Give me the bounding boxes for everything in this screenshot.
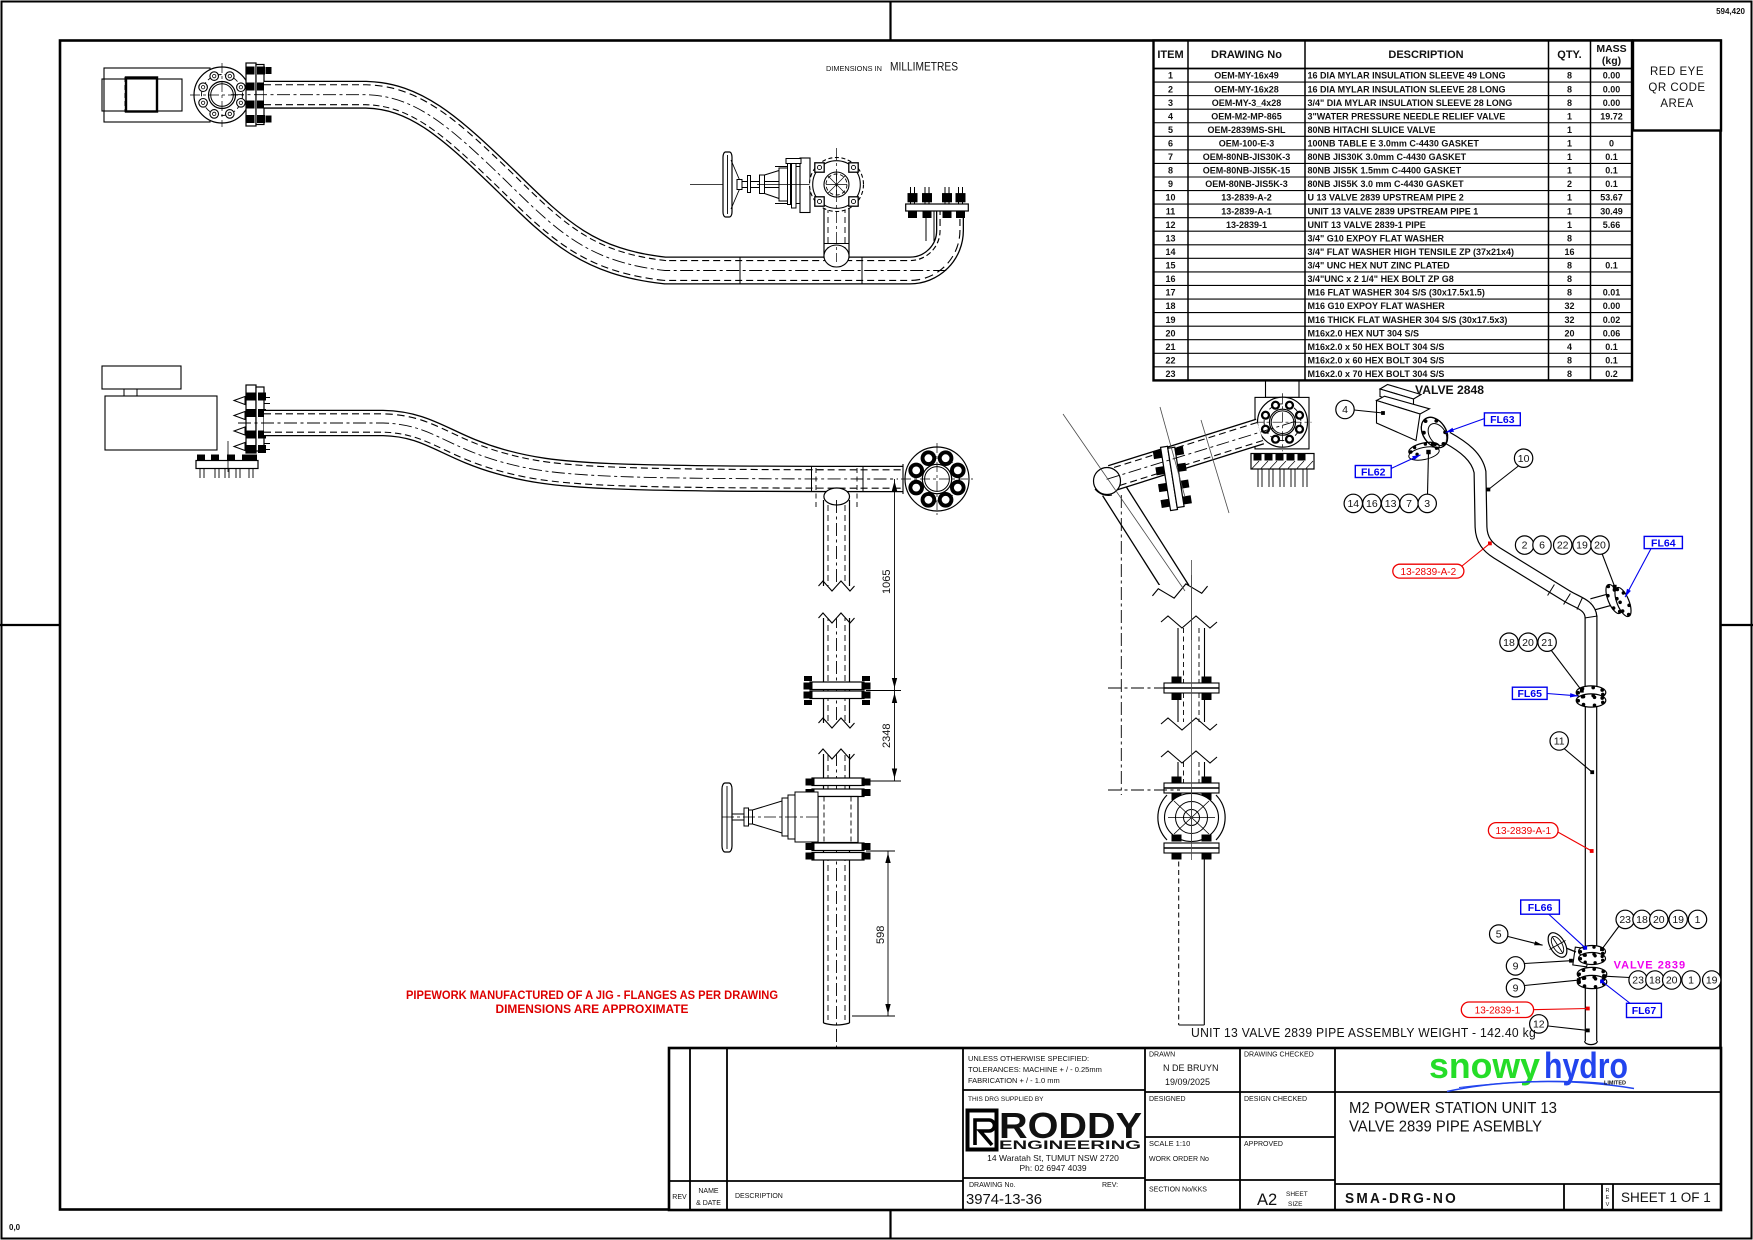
svg-text:RED EYE: RED EYE <box>1650 66 1704 78</box>
svg-text:13-2839-A-1: 13-2839-A-1 <box>1495 826 1551 837</box>
svg-text:SMA-DRG-NO: SMA-DRG-NO <box>1345 1190 1458 1207</box>
svg-text:DESIGNED: DESIGNED <box>1149 1096 1186 1103</box>
svg-text:DRAWING CHECKED: DRAWING CHECKED <box>1244 1052 1314 1059</box>
svg-text:MASS: MASS <box>1596 43 1626 55</box>
svg-text:3: 3 <box>1168 98 1173 108</box>
svg-text:2348: 2348 <box>881 724 893 748</box>
svg-text:0.01: 0.01 <box>1603 288 1621 298</box>
svg-text:3/4" UNC HEX NUT ZINC PLATED: 3/4" UNC HEX NUT ZINC PLATED <box>1308 261 1451 271</box>
svg-text:32: 32 <box>1564 315 1574 325</box>
svg-text:1: 1 <box>1567 193 1572 203</box>
svg-text:13-2839-A-2: 13-2839-A-2 <box>1221 193 1272 203</box>
svg-text:ENGINEERING: ENGINEERING <box>999 1138 1141 1152</box>
svg-text:21: 21 <box>1165 342 1175 352</box>
svg-text:FL67: FL67 <box>1632 1005 1657 1017</box>
svg-text:9: 9 <box>1168 179 1173 189</box>
svg-text:7: 7 <box>1168 152 1173 162</box>
svg-text:0.1: 0.1 <box>1605 179 1618 189</box>
svg-text:8: 8 <box>1567 84 1572 94</box>
svg-text:1: 1 <box>1567 111 1572 121</box>
svg-text:DESCRIPTION: DESCRIPTION <box>1388 49 1463 61</box>
svg-text:0.06: 0.06 <box>1603 328 1621 338</box>
svg-text:14: 14 <box>1347 498 1359 510</box>
svg-text:6: 6 <box>1539 540 1545 552</box>
svg-text:16 DIA MYLAR INSULATION SLEEVE: 16 DIA MYLAR INSULATION SLEEVE 28 LONG <box>1308 84 1506 94</box>
svg-text:19: 19 <box>1706 975 1718 987</box>
svg-text:19: 19 <box>1672 914 1684 926</box>
svg-text:DIMENSIONS IN: DIMENSIONS IN <box>826 66 882 73</box>
svg-text:5: 5 <box>1496 929 1502 941</box>
svg-text:1: 1 <box>1695 914 1701 926</box>
svg-text:LIMITED: LIMITED <box>1604 1081 1626 1087</box>
svg-text:8: 8 <box>1567 71 1572 81</box>
svg-text:8: 8 <box>1567 356 1572 366</box>
svg-text:22: 22 <box>1557 540 1569 552</box>
svg-text:MILLIMETRES: MILLIMETRES <box>890 62 958 74</box>
svg-text:4: 4 <box>1567 342 1572 352</box>
svg-text:VALVE 2848: VALVE 2848 <box>1415 383 1484 397</box>
svg-text:DIMENSIONS ARE APPROXIMATE: DIMENSIONS ARE APPROXIMATE <box>496 1004 689 1016</box>
svg-text:REV:: REV: <box>1102 1182 1118 1189</box>
svg-text:OEM-80NB-JIS5K-15: OEM-80NB-JIS5K-15 <box>1203 166 1291 176</box>
svg-text:3/4" G10 EXPOY FLAT WASHER: 3/4" G10 EXPOY FLAT WASHER <box>1308 233 1445 243</box>
svg-text:8: 8 <box>1567 369 1572 379</box>
svg-text:M2 POWER STATION UNIT 13: M2 POWER STATION UNIT 13 <box>1349 1100 1557 1117</box>
svg-text:OEM-MY-16x49: OEM-MY-16x49 <box>1214 71 1279 81</box>
svg-text:WORK ORDER No: WORK ORDER No <box>1149 1156 1209 1163</box>
svg-text:0: 0 <box>1609 139 1614 149</box>
svg-text:U 13 VALVE 2839 UPSTREAM PIPE: U 13 VALVE 2839 UPSTREAM PIPE 2 <box>1308 193 1464 203</box>
svg-text:FL66: FL66 <box>1528 902 1553 914</box>
svg-text:23: 23 <box>1619 914 1631 926</box>
svg-text:20: 20 <box>1522 637 1534 649</box>
svg-text:80NB JIS5K 3.0 mm C-4430 GASK: 80NB JIS5K 3.0 mm C-4430 GASKET <box>1308 179 1465 189</box>
svg-text:M16x2.0 x 60 HEX BOLT 304 S/S: M16x2.0 x 60 HEX BOLT 304 S/S <box>1308 356 1445 366</box>
svg-text:13-2839-A-2: 13-2839-A-2 <box>1401 567 1457 578</box>
svg-text:8: 8 <box>1567 98 1572 108</box>
svg-text:53.67: 53.67 <box>1600 193 1623 203</box>
svg-text:80NB HITACHI SLUICE VALVE: 80NB HITACHI SLUICE VALVE <box>1308 125 1436 135</box>
svg-text:0.00: 0.00 <box>1603 71 1621 81</box>
svg-text:20: 20 <box>1564 328 1574 338</box>
svg-text:0.1: 0.1 <box>1605 166 1618 176</box>
svg-text:18: 18 <box>1503 637 1515 649</box>
svg-text:FL63: FL63 <box>1490 414 1515 426</box>
svg-text:QTY.: QTY. <box>1557 49 1581 61</box>
svg-text:1: 1 <box>1567 206 1572 216</box>
svg-text:OEM-2839MS-SHL: OEM-2839MS-SHL <box>1207 125 1286 135</box>
svg-text:18: 18 <box>1165 301 1175 311</box>
svg-text:VALVE 2839 PIPE ASEMBLY: VALVE 2839 PIPE ASEMBLY <box>1349 1119 1542 1136</box>
svg-text:8: 8 <box>1168 166 1173 176</box>
svg-text:1: 1 <box>1567 139 1572 149</box>
svg-text:22: 22 <box>1165 356 1175 366</box>
svg-text:0.02: 0.02 <box>1603 315 1621 325</box>
svg-text:snowy: snowy <box>1429 1045 1540 1086</box>
svg-text:NAME: NAME <box>698 1188 719 1195</box>
svg-text:80NB JIS30K 3.0mm C-4430 GASK: 80NB JIS30K 3.0mm C-4430 GASKET <box>1308 152 1467 162</box>
svg-text:2: 2 <box>1168 84 1173 94</box>
svg-text:M16 FLAT WASHER 304 S/S (30x1: M16 FLAT WASHER 304 S/S (30x17.5x1.5) <box>1308 288 1485 298</box>
svg-text:M16x2.0 x 50 HEX BOLT 304 S/S: M16x2.0 x 50 HEX BOLT 304 S/S <box>1308 342 1445 352</box>
svg-text:4: 4 <box>1168 111 1173 121</box>
svg-text:3: 3 <box>1424 498 1430 510</box>
svg-text:THIS DRG SUPPLIED BY: THIS DRG SUPPLIED BY <box>968 1096 1044 1103</box>
svg-text:2: 2 <box>1567 179 1572 189</box>
svg-text:1: 1 <box>1567 152 1572 162</box>
svg-text:8: 8 <box>1567 288 1572 298</box>
svg-text:15: 15 <box>1165 261 1175 271</box>
svg-text:PIPEWORK MANUFACTURED OF A JIG: PIPEWORK MANUFACTURED OF A JIG - FLANGES… <box>406 990 778 1002</box>
svg-text:M16x2.0 x 70 HEX BOLT 304 S/S: M16x2.0 x 70 HEX BOLT 304 S/S <box>1308 369 1445 379</box>
svg-text:3/4"UNC x 2 1/4" HEX BOLT ZP G: 3/4"UNC x 2 1/4" HEX BOLT ZP G8 <box>1308 274 1454 284</box>
svg-text:13-2839-1: 13-2839-1 <box>1475 1005 1521 1016</box>
svg-text:SHEET 1 OF 1: SHEET 1 OF 1 <box>1621 1190 1711 1205</box>
svg-text:18: 18 <box>1649 975 1661 987</box>
svg-text:Ph: 02 6947 4039: Ph: 02 6947 4039 <box>1019 1163 1086 1173</box>
svg-text:V: V <box>1606 1202 1610 1208</box>
svg-text:E: E <box>1606 1195 1610 1201</box>
svg-text:SIZE: SIZE <box>1288 1201 1303 1208</box>
svg-text:M16 THICK FLAT WASHER 304 S/S: M16 THICK FLAT WASHER 304 S/S (30x17.5x3… <box>1308 315 1508 325</box>
svg-text:19/09/2025: 19/09/2025 <box>1165 1077 1210 1087</box>
svg-text:598: 598 <box>875 926 887 944</box>
svg-text:UNIT 13 VALVE 2839-1 PIPE: UNIT 13 VALVE 2839-1 PIPE <box>1308 220 1426 230</box>
svg-text:0.1: 0.1 <box>1605 152 1618 162</box>
svg-text:19: 19 <box>1165 315 1175 325</box>
svg-text:9: 9 <box>1513 961 1519 973</box>
svg-text:20: 20 <box>1653 914 1665 926</box>
svg-text:& DATE: & DATE <box>696 1200 721 1207</box>
svg-text:5.66: 5.66 <box>1603 220 1621 230</box>
svg-text:0.2: 0.2 <box>1605 369 1618 379</box>
svg-text:10: 10 <box>1165 193 1175 203</box>
svg-text:QR CODE: QR CODE <box>1648 82 1705 94</box>
svg-text:9: 9 <box>1513 982 1519 994</box>
svg-text:8: 8 <box>1567 261 1572 271</box>
svg-text:0.00: 0.00 <box>1603 84 1621 94</box>
svg-text:A2: A2 <box>1257 1191 1277 1209</box>
svg-text:13: 13 <box>1385 498 1397 510</box>
svg-text:M16 G10 EXPOY FLAT WASHER: M16 G10 EXPOY FLAT WASHER <box>1308 301 1446 311</box>
svg-text:DRAWING No: DRAWING No <box>1211 49 1282 61</box>
svg-text:0,0: 0,0 <box>9 1223 21 1232</box>
svg-text:0.1: 0.1 <box>1605 342 1618 352</box>
svg-text:30.49: 30.49 <box>1600 206 1623 216</box>
svg-text:16: 16 <box>1165 274 1175 284</box>
svg-text:594,420: 594,420 <box>1716 7 1745 16</box>
svg-text:FL62: FL62 <box>1361 466 1386 478</box>
svg-text:16 DIA MYLAR INSULATION SLEEVE: 16 DIA MYLAR INSULATION SLEEVE 49 LONG <box>1308 71 1506 81</box>
svg-text:6: 6 <box>1168 139 1173 149</box>
svg-text:20: 20 <box>1666 975 1678 987</box>
svg-text:AREA: AREA <box>1660 98 1693 110</box>
svg-text:SECTION No/KKS: SECTION No/KKS <box>1149 1187 1207 1194</box>
svg-text:0.1: 0.1 <box>1605 261 1618 271</box>
svg-text:20: 20 <box>1165 328 1175 338</box>
svg-text:DESCRIPTION: DESCRIPTION <box>735 1193 783 1200</box>
svg-text:3974-13-36: 3974-13-36 <box>966 1191 1042 1208</box>
svg-text:17: 17 <box>1165 288 1175 298</box>
svg-text:VALVE 2839: VALVE 2839 <box>1614 960 1687 972</box>
svg-text:UNIT 13 VALVE 2839 UPSTREAM PI: UNIT 13 VALVE 2839 UPSTREAM PIPE 1 <box>1308 206 1479 216</box>
svg-text:OEM-M2-MP-865: OEM-M2-MP-865 <box>1211 111 1282 121</box>
svg-text:20: 20 <box>1594 540 1606 552</box>
svg-text:FABRICATION + / - 1.0 mm: FABRICATION + / - 1.0 mm <box>968 1076 1060 1085</box>
svg-text:8: 8 <box>1567 233 1572 243</box>
svg-text:1: 1 <box>1567 166 1572 176</box>
svg-text:ITEM: ITEM <box>1157 49 1183 61</box>
svg-text:11: 11 <box>1554 736 1565 748</box>
svg-text:1: 1 <box>1567 125 1572 135</box>
svg-text:32: 32 <box>1564 301 1574 311</box>
svg-text:23: 23 <box>1165 369 1175 379</box>
svg-text:DESIGN CHECKED: DESIGN CHECKED <box>1244 1096 1307 1103</box>
svg-text:14 Waratah St, TUMUT NSW 2720: 14 Waratah St, TUMUT NSW 2720 <box>987 1153 1119 1163</box>
svg-text:R: R <box>1606 1188 1610 1194</box>
svg-text:FL65: FL65 <box>1517 688 1542 700</box>
svg-text:APPROVED: APPROVED <box>1244 1141 1283 1148</box>
svg-text:80NB JIS5K 1.5mm C-4400 GASKE: 80NB JIS5K 1.5mm C-4400 GASKET <box>1308 166 1462 176</box>
svg-text:4: 4 <box>1342 404 1348 416</box>
svg-text:16: 16 <box>1366 498 1378 510</box>
svg-text:OEM-80NB-JIS30K-3: OEM-80NB-JIS30K-3 <box>1203 152 1291 162</box>
svg-text:13-2839-1: 13-2839-1 <box>1226 220 1267 230</box>
svg-text:OEM-MY-16x28: OEM-MY-16x28 <box>1214 84 1279 94</box>
svg-text:OEM-MY-3_4x28: OEM-MY-3_4x28 <box>1212 98 1282 108</box>
svg-text:8: 8 <box>1567 274 1572 284</box>
svg-text:13-2839-A-1: 13-2839-A-1 <box>1221 206 1272 216</box>
svg-text:1: 1 <box>1688 975 1694 987</box>
svg-text:11: 11 <box>1166 206 1176 216</box>
svg-text:SHEET: SHEET <box>1286 1191 1308 1198</box>
svg-text:2: 2 <box>1522 540 1528 552</box>
svg-text:OEM-80NB-JIS5K-3: OEM-80NB-JIS5K-3 <box>1205 179 1288 189</box>
svg-text:5: 5 <box>1168 125 1173 135</box>
svg-text:13: 13 <box>1165 233 1175 243</box>
svg-text:16: 16 <box>1564 247 1574 257</box>
svg-text:0.00: 0.00 <box>1603 98 1621 108</box>
svg-text:0.1: 0.1 <box>1605 356 1618 366</box>
svg-text:UNLESS OTHERWISE SPECIFIED:: UNLESS OTHERWISE SPECIFIED: <box>968 1054 1089 1063</box>
svg-text:3/4" DIA MYLAR INSULATION SLEE: 3/4" DIA MYLAR INSULATION SLEEVE 28 LONG <box>1308 98 1513 108</box>
svg-text:UNIT 13 VALVE 2839 PIPE ASSEM: UNIT 13 VALVE 2839 PIPE ASSEMBLY WEIGHT … <box>1191 1026 1536 1040</box>
svg-text:21: 21 <box>1541 637 1553 649</box>
svg-text:(kg): (kg) <box>1602 55 1621 67</box>
svg-text:19.72: 19.72 <box>1600 111 1623 121</box>
svg-text:0.00: 0.00 <box>1603 301 1621 311</box>
svg-text:23: 23 <box>1632 975 1644 987</box>
svg-text:SCALE 1:10: SCALE 1:10 <box>1149 1139 1190 1148</box>
svg-text:TOLERANCES: MACHINE + / - 0.25: TOLERANCES: MACHINE + / - 0.25mm <box>968 1065 1102 1074</box>
svg-text:REV: REV <box>672 1194 687 1201</box>
svg-text:12: 12 <box>1165 220 1175 230</box>
svg-text:1: 1 <box>1168 71 1173 81</box>
svg-text:N DE BRUYN: N DE BRUYN <box>1163 1063 1219 1073</box>
svg-text:OEM-100-E-3: OEM-100-E-3 <box>1219 139 1275 149</box>
svg-text:3"WATER PRESSURE NEEDLE RELIEF: 3"WATER PRESSURE NEEDLE RELIEF VALVE <box>1308 111 1506 121</box>
svg-text:10: 10 <box>1518 453 1530 465</box>
svg-text:FL64: FL64 <box>1651 537 1676 549</box>
svg-text:3/4" FLAT WASHER HIGH TENSILE: 3/4" FLAT WASHER HIGH TENSILE ZP (37x21x… <box>1308 247 1514 257</box>
svg-text:DRAWING No.: DRAWING No. <box>969 1182 1015 1189</box>
svg-text:14: 14 <box>1165 247 1175 257</box>
svg-text:M16x2.0 HEX NUT 304 S/S: M16x2.0 HEX NUT 304 S/S <box>1308 328 1420 338</box>
svg-text:1: 1 <box>1567 220 1572 230</box>
svg-text:18: 18 <box>1636 914 1648 926</box>
svg-text:100NB TABLE E 3.0mm C-4430 GA: 100NB TABLE E 3.0mm C-4430 GASKET <box>1308 139 1480 149</box>
svg-text:19: 19 <box>1576 540 1588 552</box>
svg-text:7: 7 <box>1406 498 1412 510</box>
svg-text:DRAWN: DRAWN <box>1149 1052 1175 1059</box>
svg-text:1065: 1065 <box>881 570 893 594</box>
